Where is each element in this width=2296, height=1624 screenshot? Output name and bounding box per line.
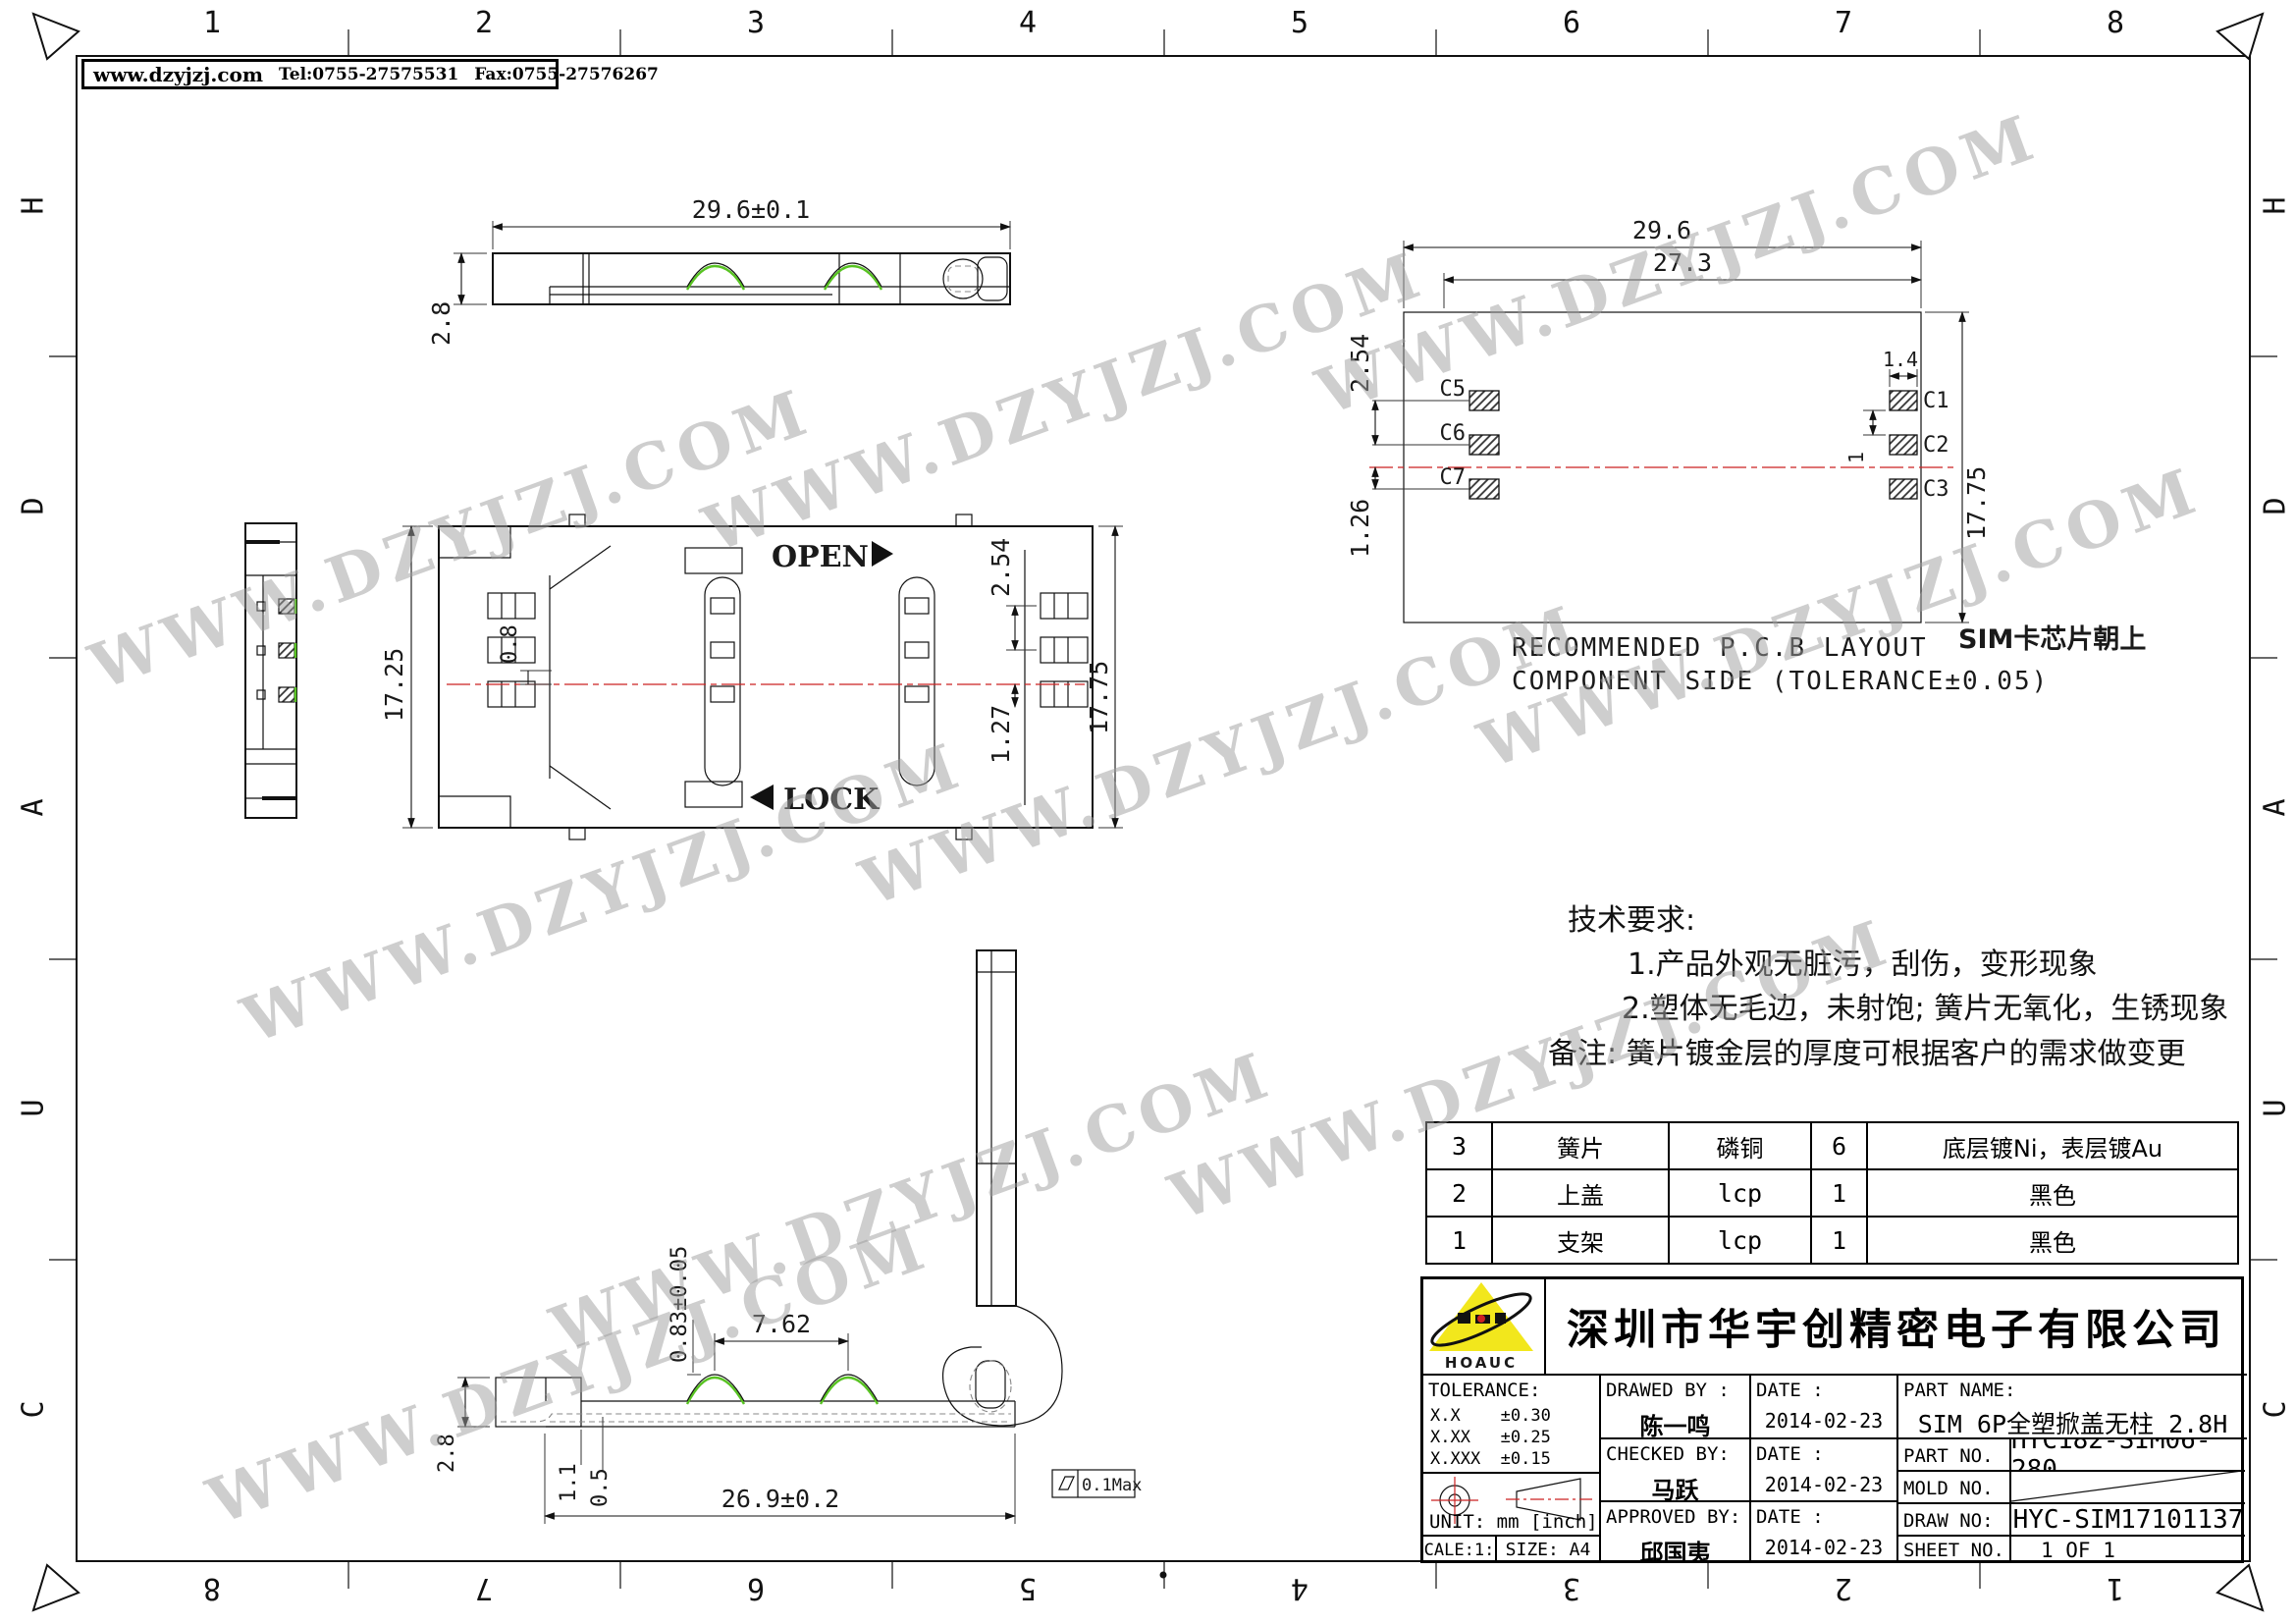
draw-no-value: HYC-SIM17101137 xyxy=(2011,1504,2245,1537)
zone-col-bottom-5: 5 xyxy=(1008,1571,1047,1605)
bom-note: 黑色 xyxy=(1868,1218,2237,1263)
dim-pcb-height: 17.75 xyxy=(1962,466,1991,540)
tech-notes-title: 技术要求: xyxy=(1568,895,1695,939)
zone-row-left-u: U xyxy=(17,1089,51,1128)
bom-qty: 1 xyxy=(1812,1170,1868,1216)
logo-cell xyxy=(1423,1279,1546,1376)
zone-col-4: 4 xyxy=(1008,6,1047,40)
open-arrow-icon xyxy=(872,541,893,567)
main-view: OPEN LOCK 17.25 0.8 2.54 1.27 17.75 xyxy=(380,514,1123,839)
zone-row-left-a: A xyxy=(17,788,51,828)
zone-col-8: 8 xyxy=(2096,6,2135,40)
zone-col-bottom-1: 1 xyxy=(2096,1571,2135,1605)
pad-label-c5: C5 xyxy=(1440,377,1467,402)
dim-bottom-total: 26.9±0.2 xyxy=(721,1485,839,1513)
pcb-layout: C5 C6 C7 2.54 1.26 C1 C2 C3 1.4 1 29.6 xyxy=(1346,216,2146,696)
drawing-sheet: 1 2 3 4 5 6 7 8 8 7 6 5 4 3 2 1 H D A U … xyxy=(0,0,2296,1624)
mold-no-value xyxy=(2011,1472,2245,1504)
zone-row-right-d: D xyxy=(2259,487,2293,526)
corner-arrow-icon xyxy=(33,14,79,59)
zone-row-right-c: C xyxy=(2259,1390,2293,1430)
bom-material: lcp xyxy=(1670,1170,1812,1216)
unit-cell: UNIT: mm [inch] xyxy=(1423,1474,1601,1537)
dim-main-pitch: 2.54 xyxy=(987,538,1015,597)
dim-top-height: 2.8 xyxy=(427,301,455,346)
bom-note: 黑色 xyxy=(1868,1170,2237,1216)
table-row: 1 支架 lcp 1 黑色 xyxy=(1427,1216,2237,1263)
tolerance-line1: X.X ±0.30 xyxy=(1423,1405,1599,1427)
dim-top-width: 29.6±0.1 xyxy=(692,195,810,224)
draw-no-label-cell: DRAW NO: xyxy=(1898,1504,2011,1537)
zone-col-5: 5 xyxy=(1280,6,1319,40)
zone-col-bottom-7: 7 xyxy=(464,1571,504,1605)
corner-arrow-icon xyxy=(2217,14,2263,59)
dim-pcb-offset: 1.26 xyxy=(1346,499,1374,558)
checked-by-label: CHECKED BY: xyxy=(1601,1439,1749,1469)
pad-label-c2: C2 xyxy=(1923,433,1949,458)
zone-col-1: 1 xyxy=(192,6,232,40)
flatness-symbol-icon xyxy=(1059,1477,1074,1489)
table-row: 3 簧片 磷铜 6 底层镀Ni，表层镀Au xyxy=(1427,1123,2237,1168)
sheet-no-value: 1 OF 1 xyxy=(2011,1537,2245,1563)
side-view xyxy=(245,523,296,818)
bom-material: lcp xyxy=(1670,1218,1812,1263)
sheet-no-label-cell: SHEET NO. xyxy=(1898,1537,2011,1563)
header-box: www.dzyjzj.com Tel:0755-27575531 Fax:075… xyxy=(81,59,559,89)
bom-name: 上盖 xyxy=(1493,1170,1670,1216)
tolerance-line3: X.XXX ±0.15 xyxy=(1423,1448,1599,1470)
bottom-view: 7.62 0.83±0.05 2.8 1.1 0.5 26.9±0.2 0.1M… xyxy=(435,950,1142,1524)
bom-table: 3 簧片 磷铜 6 底层镀Ni，表层镀Au 2 上盖 lcp 1 黑色 1 支架… xyxy=(1425,1121,2239,1265)
checked-by-name: 马跃 xyxy=(1601,1471,1749,1502)
lock-arrow-icon xyxy=(750,785,774,810)
tolerance-line2: X.XX ±0.25 xyxy=(1423,1427,1599,1448)
approved-by-label: APPROVED BY: xyxy=(1601,1502,1749,1532)
pcb-caption-line2: COMPONENT SIDE (TOLERANCE±0.05) xyxy=(1512,667,2049,696)
pcb-caption-line1: RECOMMENDED P.C.B LAYOUT xyxy=(1512,633,1928,663)
part-name-cell: PART NAME: SIM 6P全塑掀盖无柱 2.8H xyxy=(1898,1376,2247,1439)
corner-arrow-icon xyxy=(33,1565,79,1610)
zone-row-right-u: U xyxy=(2259,1089,2293,1128)
dim-bottom-height: 2.8 xyxy=(435,1434,459,1473)
dim-main-height-left: 17.25 xyxy=(380,648,408,722)
zone-row-left-h: H xyxy=(17,187,51,226)
unit-label: UNIT: mm [inch] xyxy=(1429,1511,1598,1533)
flatness-value: 0.1Max xyxy=(1082,1476,1142,1495)
part-no-value: HYC182-SIM06-280 xyxy=(2011,1439,2245,1472)
date-cell-3: DATE : 2014-02-23 xyxy=(1751,1502,1898,1563)
dim-pcb-inner-width: 27.3 xyxy=(1653,248,1712,277)
zone-col-bottom-6: 6 xyxy=(736,1571,775,1605)
date-label: DATE : xyxy=(1751,1439,1896,1469)
dim-pcb-pad-gap: 1 xyxy=(1844,452,1868,463)
top-view: 29.6±0.1 2.8 xyxy=(427,195,1010,346)
draw-no-label: DRAW NO: xyxy=(1898,1504,2009,1536)
tech-notes-remark: 备注: 簧片镀金层的厚度可根据客户的需求做变更 xyxy=(1548,1029,2186,1072)
open-label: OPEN xyxy=(772,540,869,574)
zone-col-bottom-3: 3 xyxy=(1552,1571,1591,1605)
zone-row-right-h: H xyxy=(2259,187,2293,226)
zone-row-right-a: A xyxy=(2259,788,2293,828)
zone-col-2: 2 xyxy=(464,6,504,40)
date-cell-1: DATE : 2014-02-23 xyxy=(1751,1376,1898,1439)
pad-label-c3: C3 xyxy=(1923,477,1949,502)
drawed-by-label: DRAWED BY : xyxy=(1601,1376,1749,1405)
date-value: 2014-02-23 xyxy=(1751,1473,1896,1496)
zone-col-bottom-2: 2 xyxy=(1824,1571,1863,1605)
tolerance-label: TOLERANCE: xyxy=(1423,1376,1599,1405)
title-block: 深圳市华宇创精密电子有限公司 TOLERANCE: X.X ±0.30 X.XX… xyxy=(1420,1276,2244,1563)
mold-no-label: MOLD NO. xyxy=(1898,1472,2009,1503)
checked-by-cell: CHECKED BY: 马跃 xyxy=(1601,1439,1751,1502)
bom-qty: 1 xyxy=(1812,1218,1868,1263)
telephone: Tel:0755-27575531 xyxy=(279,65,458,84)
drawed-by-cell: DRAWED BY : 陈一鸣 xyxy=(1601,1376,1751,1439)
dim-bottom-step1: 1.1 xyxy=(557,1463,581,1502)
sheet-no-label: SHEET NO. xyxy=(1898,1537,2009,1563)
bom-no: 2 xyxy=(1427,1170,1493,1216)
zone-col-7: 7 xyxy=(1824,6,1863,40)
bom-note: 底层镀Ni，表层镀Au xyxy=(1868,1123,2237,1168)
size-cell: SIZE: A4 xyxy=(1497,1537,1601,1563)
dim-bottom-span: 7.62 xyxy=(752,1310,811,1338)
date-value: 2014-02-23 xyxy=(1751,1409,1896,1433)
approved-by-cell: APPROVED BY: 邱国夷 xyxy=(1601,1502,1751,1563)
zone-row-left-d: D xyxy=(17,487,51,526)
dim-pcb-width: 29.6 xyxy=(1632,216,1691,244)
pad-label-c1: C1 xyxy=(1923,389,1949,413)
fax: Fax:0755-27576267 xyxy=(474,65,659,84)
zone-row-left-c: C xyxy=(17,1390,51,1430)
bom-no: 1 xyxy=(1427,1218,1493,1263)
dim-main-height-right: 17.75 xyxy=(1085,661,1113,734)
drawed-by-name: 陈一鸣 xyxy=(1601,1407,1749,1439)
zone-col-bottom-8: 8 xyxy=(192,1571,232,1605)
table-row: 2 上盖 lcp 1 黑色 xyxy=(1427,1168,2237,1216)
date-value: 2014-02-23 xyxy=(1751,1536,1896,1559)
mold-no-label-cell: MOLD NO. xyxy=(1898,1472,2011,1504)
pcb-note: SIM卡芯片朝上 xyxy=(1958,624,2146,655)
bom-qty: 6 xyxy=(1812,1123,1868,1168)
date-cell-2: DATE : 2014-02-23 xyxy=(1751,1439,1898,1502)
bom-name: 支架 xyxy=(1493,1218,1670,1263)
zone-col-3: 3 xyxy=(736,6,775,40)
dim-bottom-bump: 0.83±0.05 xyxy=(667,1246,692,1363)
zone-col-6: 6 xyxy=(1552,6,1591,40)
dim-bottom-step2: 0.5 xyxy=(588,1468,613,1507)
tech-notes-item2: 2.塑体无毛边，未射饱; 簧片无氧化，生锈现象 xyxy=(1622,984,2228,1027)
bom-material: 磷铜 xyxy=(1670,1123,1812,1168)
dim-main-half-pitch: 1.27 xyxy=(987,705,1015,764)
scale-cell: SCALE:1:1 xyxy=(1423,1537,1497,1563)
part-no-label-cell: PART NO. xyxy=(1898,1439,2011,1472)
company-name: 深圳市华宇创精密电子有限公司 xyxy=(1546,1279,2247,1376)
bom-name: 簧片 xyxy=(1493,1123,1670,1168)
lock-label: LOCK xyxy=(783,783,880,817)
approved-by-name: 邱国夷 xyxy=(1601,1534,1749,1563)
part-no-label: PART NO. xyxy=(1898,1439,2009,1471)
part-name-value: SIM 6P全塑掀盖无柱 2.8H xyxy=(1898,1405,2247,1439)
pad-label-c6: C6 xyxy=(1440,421,1467,446)
corner-arrow-icon xyxy=(2217,1565,2263,1610)
zone-col-bottom-4: 4 xyxy=(1280,1571,1319,1605)
part-name-label: PART NAME: xyxy=(1898,1376,2247,1405)
dim-main-contact: 0.8 xyxy=(498,624,522,664)
tolerance-cell: TOLERANCE: X.X ±0.30 X.XX ±0.25 X.XXX ±0… xyxy=(1423,1376,1601,1474)
date-label: DATE : xyxy=(1751,1502,1896,1532)
tech-notes-item1: 1.产品外观无脏污，刮伤，变形现象 xyxy=(1628,940,2098,983)
pad-label-c7: C7 xyxy=(1440,465,1467,490)
dim-pcb-pad-width: 1.4 xyxy=(1883,348,1918,371)
dim-pcb-pitch: 2.54 xyxy=(1346,334,1374,393)
bom-no: 3 xyxy=(1427,1123,1493,1168)
website: www.dzyjzj.com xyxy=(93,63,263,86)
date-label: DATE : xyxy=(1751,1376,1896,1405)
